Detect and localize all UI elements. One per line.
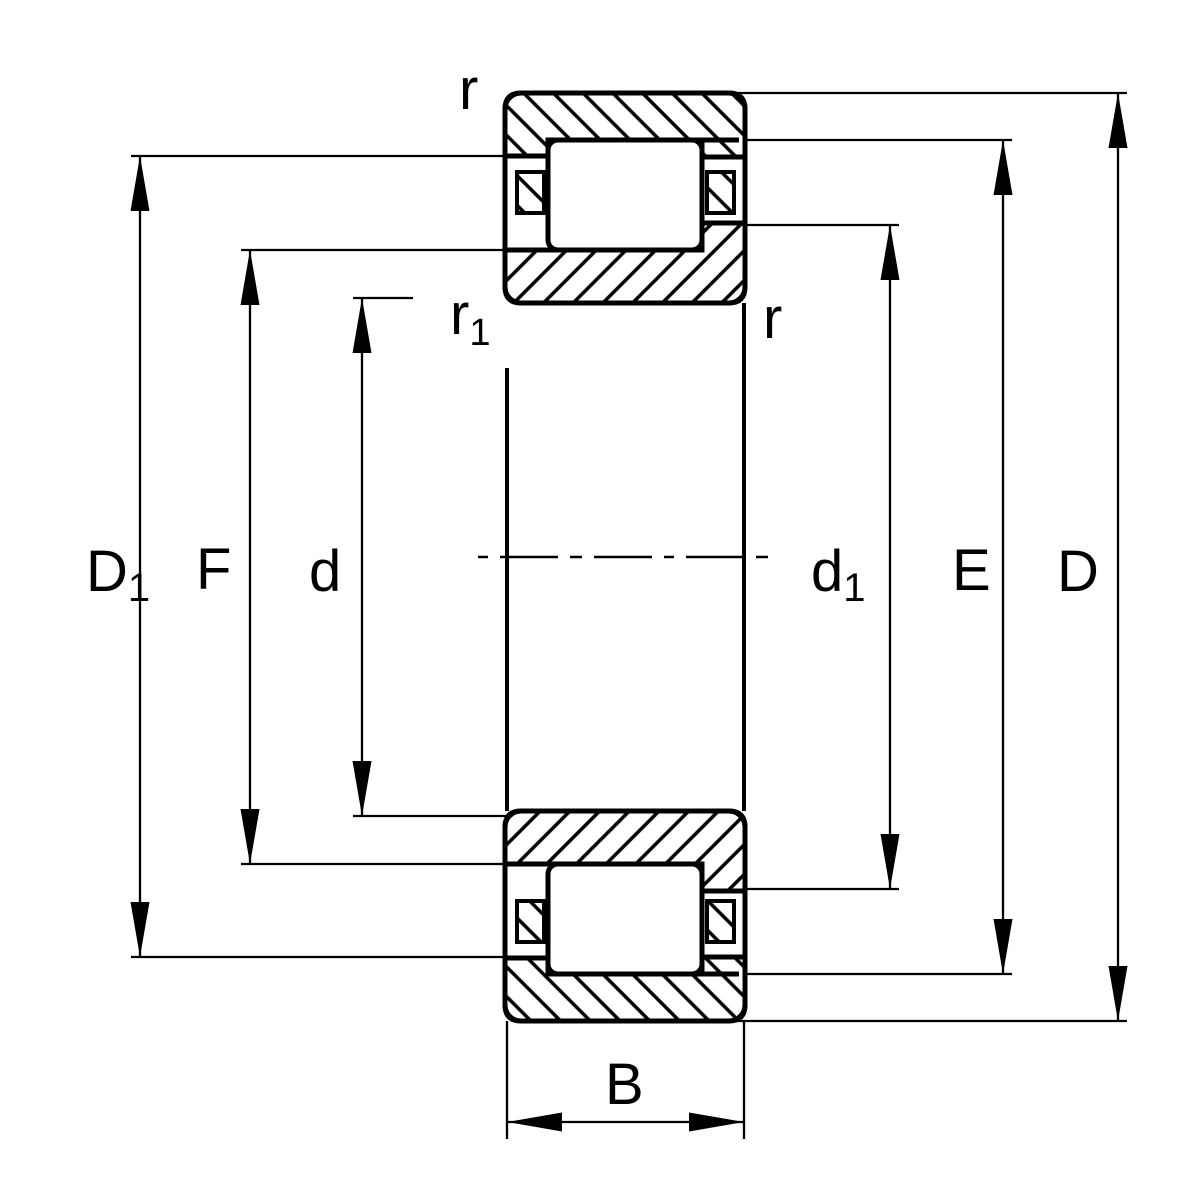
cage-bar-left-top	[517, 172, 544, 213]
label-B: B	[605, 1052, 644, 1117]
arrowhead-d-top	[353, 298, 372, 353]
arrowhead-D-bottom	[1109, 966, 1128, 1021]
arrowhead-B-right	[689, 1113, 744, 1132]
outer-ring-bottom-section	[505, 957, 745, 1021]
arrowhead-d-bottom	[353, 761, 372, 816]
outer-ring-top-section	[505, 93, 745, 157]
arrowhead-d1-bottom	[881, 834, 900, 889]
cage-bar-right-top	[707, 172, 734, 213]
arrowhead-D1-bottom	[131, 902, 150, 957]
arrowhead-D1-top	[131, 156, 150, 211]
arrowhead-F-bottom	[241, 809, 260, 864]
cage-bar-left-bottom	[517, 901, 544, 942]
arrowhead-E-bottom	[994, 919, 1013, 974]
roller-bottom	[548, 864, 702, 974]
bearing-diagram-canvas: D1 F d r r1 r d1 E D B	[0, 0, 1200, 1200]
arrowhead-B-left	[507, 1113, 562, 1132]
label-E: E	[952, 538, 991, 603]
label-r-right: r	[763, 286, 782, 351]
label-D: D	[1057, 539, 1099, 604]
inner-ring-bottom-section	[505, 811, 745, 891]
inner-ring-top-section	[505, 223, 745, 303]
arrowhead-d1-top	[881, 225, 900, 280]
label-d: d	[309, 539, 341, 604]
label-r1: r1	[450, 282, 490, 354]
bearing-dimension-drawing: D1 F d r r1 r d1 E D B	[0, 0, 1200, 1200]
cage-bar-right-bottom	[707, 901, 734, 942]
arrowhead-F-top	[241, 250, 260, 305]
label-d1: d1	[811, 539, 866, 610]
label-F: F	[196, 537, 231, 602]
label-r-top: r	[459, 57, 478, 122]
arrowhead-D-top	[1109, 93, 1128, 148]
roller-top	[548, 140, 702, 250]
arrowhead-E-top	[994, 140, 1013, 195]
